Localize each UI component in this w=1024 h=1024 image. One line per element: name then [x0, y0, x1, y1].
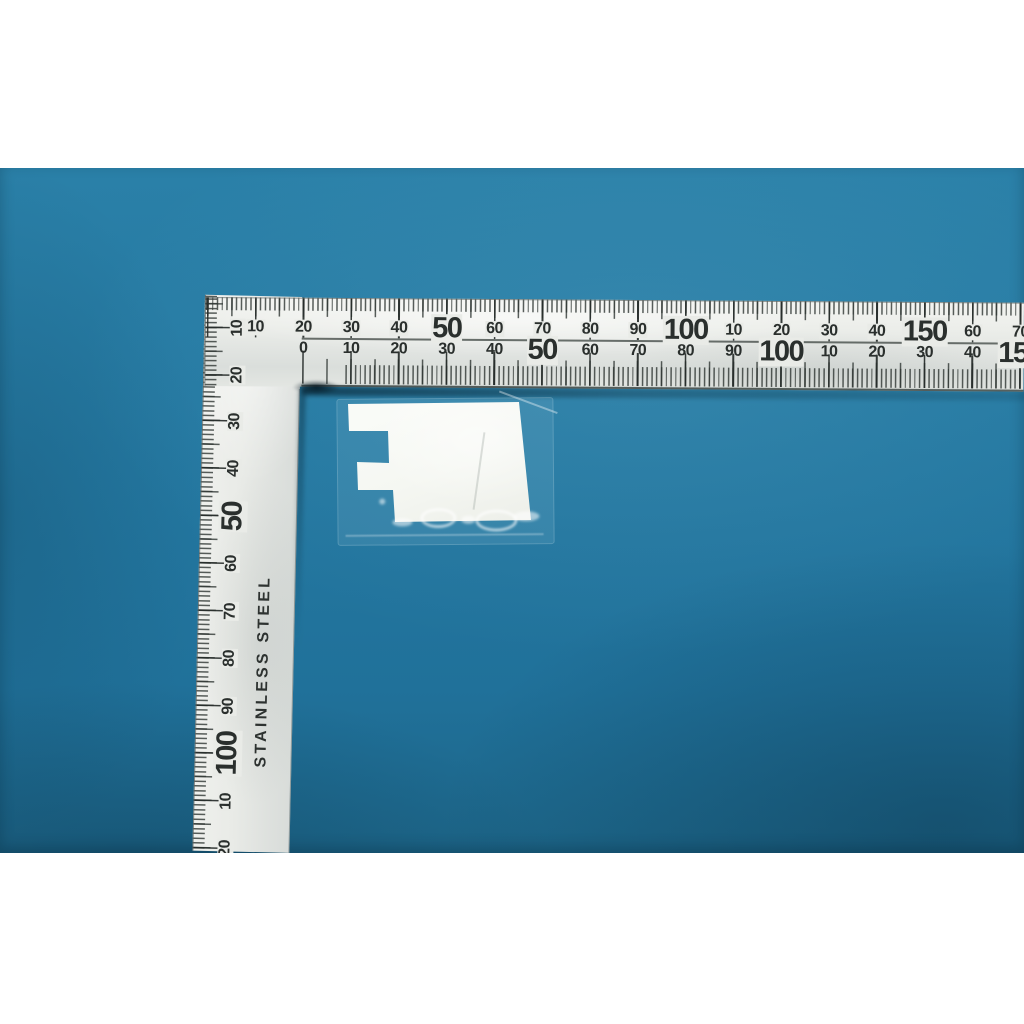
- scale-number-90: 90: [220, 696, 236, 715]
- scale-number-10: 10: [342, 341, 361, 357]
- pad-crease: [473, 432, 485, 509]
- scale-number-80: 80: [222, 649, 238, 668]
- scale-number-100: 100: [213, 730, 243, 777]
- scale-number-20: 20: [389, 341, 408, 357]
- scale-number-30: 30: [437, 342, 456, 358]
- scale-number-50: 50: [218, 500, 248, 532]
- scale-number-50: 50: [526, 336, 557, 365]
- lower-scale-numbers: 010203040506070809010010203040150: [204, 297, 1024, 392]
- scale-number-60: 60: [224, 554, 240, 573]
- scale-number-20: 20: [217, 839, 233, 853]
- scale-number-40: 40: [963, 345, 982, 361]
- photo-scene: 1020304050607080901001020 STAINLESS STEE…: [0, 0, 1024, 1024]
- scale-number-70: 70: [628, 343, 647, 359]
- scale-number-80: 80: [676, 343, 695, 359]
- letterbox-bottom: [0, 853, 1024, 1024]
- scale-number-40: 40: [226, 459, 242, 478]
- letterbox-top: [0, 0, 1024, 168]
- scale-number-20: 20: [867, 345, 886, 361]
- scale-number-30: 30: [915, 345, 934, 361]
- scale-number-100: 100: [758, 337, 804, 366]
- scale-number-10: 10: [820, 344, 839, 360]
- scale-number-60: 60: [581, 343, 600, 359]
- scale-number-90: 90: [724, 344, 743, 360]
- scale-number-150: 150: [997, 339, 1024, 368]
- ruler-horizontal-arm: 1020 10203040506070809010010203040150607…: [204, 297, 1024, 392]
- photo-background: 1020304050607080901001020 STAINLESS STEE…: [0, 168, 1024, 853]
- scale-number-30: 30: [227, 411, 243, 430]
- scale-number-70: 70: [223, 601, 239, 620]
- scale-number-10: 10: [218, 791, 234, 810]
- scale-number-40: 40: [485, 342, 504, 358]
- scale-number-0: 0: [298, 341, 309, 357]
